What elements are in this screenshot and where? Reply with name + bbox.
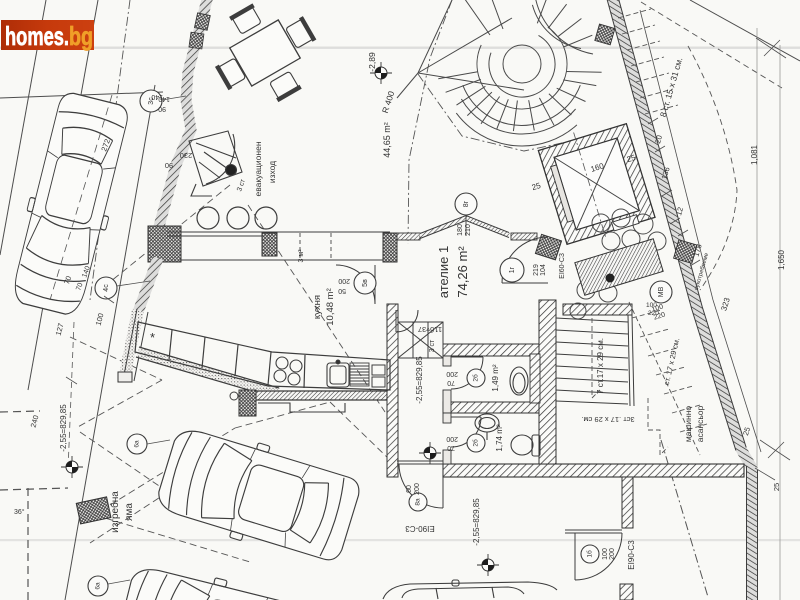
svg-text:36°: 36° — [14, 508, 25, 516]
svg-text:МВ: МВ — [658, 286, 665, 297]
svg-text:1,650: 1,650 — [777, 249, 786, 270]
svg-text:EI60-C3: EI60-C3 — [559, 253, 566, 279]
svg-text:90: 90 — [165, 161, 173, 170]
svg-text:изгребна: изгребна — [109, 491, 121, 533]
svg-text:-2,55=829,85: -2,55=829,85 — [59, 404, 68, 452]
svg-text:200: 200 — [446, 435, 458, 442]
svg-text:200: 200 — [338, 277, 350, 284]
svg-text:210: 210 — [465, 224, 472, 236]
svg-text:2б: 2б — [472, 374, 480, 382]
svg-text:10,48 m²: 10,48 m² — [325, 288, 336, 326]
svg-text:50: 50 — [338, 287, 346, 294]
svg-text:машинно: машинно — [683, 406, 693, 443]
svg-text:74,26 m²: 74,26 m² — [455, 246, 470, 298]
svg-text:2б: 2б — [472, 439, 480, 447]
svg-text:90: 90 — [158, 105, 166, 112]
svg-text:4с: 4с — [103, 284, 110, 292]
svg-text:-2,55=829,85: -2,55=829,85 — [472, 498, 481, 546]
svg-text:219: 219 — [533, 264, 540, 276]
svg-text:140: 140 — [151, 93, 163, 100]
svg-text:25: 25 — [772, 483, 781, 491]
svg-text:homes.: homes. — [5, 21, 69, 51]
svg-text:8а: 8а — [415, 498, 422, 506]
svg-text:70: 70 — [447, 379, 455, 386]
svg-text:bg: bg — [69, 21, 93, 51]
svg-text:3 м²: 3 м² — [298, 249, 305, 263]
svg-text:8г: 8г — [463, 200, 470, 207]
svg-text:евакуационен: евакуационен — [253, 141, 263, 196]
svg-text:11б▿37: 11б▿37 — [418, 325, 442, 334]
svg-text:104: 104 — [540, 264, 547, 276]
svg-text:200: 200 — [414, 483, 421, 495]
svg-text:180: 180 — [457, 224, 464, 236]
svg-text:1,081: 1,081 — [750, 144, 759, 165]
svg-text:EI90-C3: EI90-C3 — [627, 540, 636, 570]
svg-text:1,49 m²: 1,49 m² — [491, 364, 500, 391]
svg-text:*: * — [150, 330, 155, 345]
svg-text:70: 70 — [447, 444, 455, 451]
svg-text:100: 100 — [646, 302, 657, 309]
svg-text:60: 60 — [406, 485, 413, 493]
svg-text:яма: яма — [124, 503, 135, 521]
svg-text:3ст .17 х 29 см.: 3ст .17 х 29 см. — [581, 415, 634, 424]
svg-text:230: 230 — [180, 151, 193, 160]
svg-text:200: 200 — [446, 370, 458, 377]
svg-text:100: 100 — [602, 548, 609, 560]
svg-text:изход: изход — [267, 161, 277, 183]
svg-text:6а: 6а — [95, 582, 102, 590]
svg-text:1,74 m²: 1,74 m² — [495, 424, 504, 451]
svg-text:7 ст.17 х 29 см.: 7 ст.17 х 29 см. — [596, 338, 605, 394]
svg-text:-2,55=829,85: -2,55=829,85 — [415, 356, 424, 404]
svg-text:-2,89: -2,89 — [367, 52, 377, 72]
svg-text:кухня: кухня — [312, 295, 323, 319]
svg-text:5в: 5в — [362, 279, 369, 287]
svg-text:220: 220 — [648, 310, 659, 317]
svg-text:44,65 m²: 44,65 m² — [382, 122, 392, 158]
svg-text:асансьор: асансьор — [695, 405, 705, 442]
svg-text:3 ст: 3 ст — [429, 339, 436, 352]
svg-text:6а: 6а — [134, 440, 141, 448]
svg-text:ателие 1: ателие 1 — [436, 246, 451, 298]
svg-text:1б: 1б — [586, 550, 594, 558]
svg-text:EI90-C3: EI90-C3 — [405, 524, 435, 533]
svg-text:1г: 1г — [509, 266, 516, 273]
svg-text:200: 200 — [609, 548, 616, 560]
